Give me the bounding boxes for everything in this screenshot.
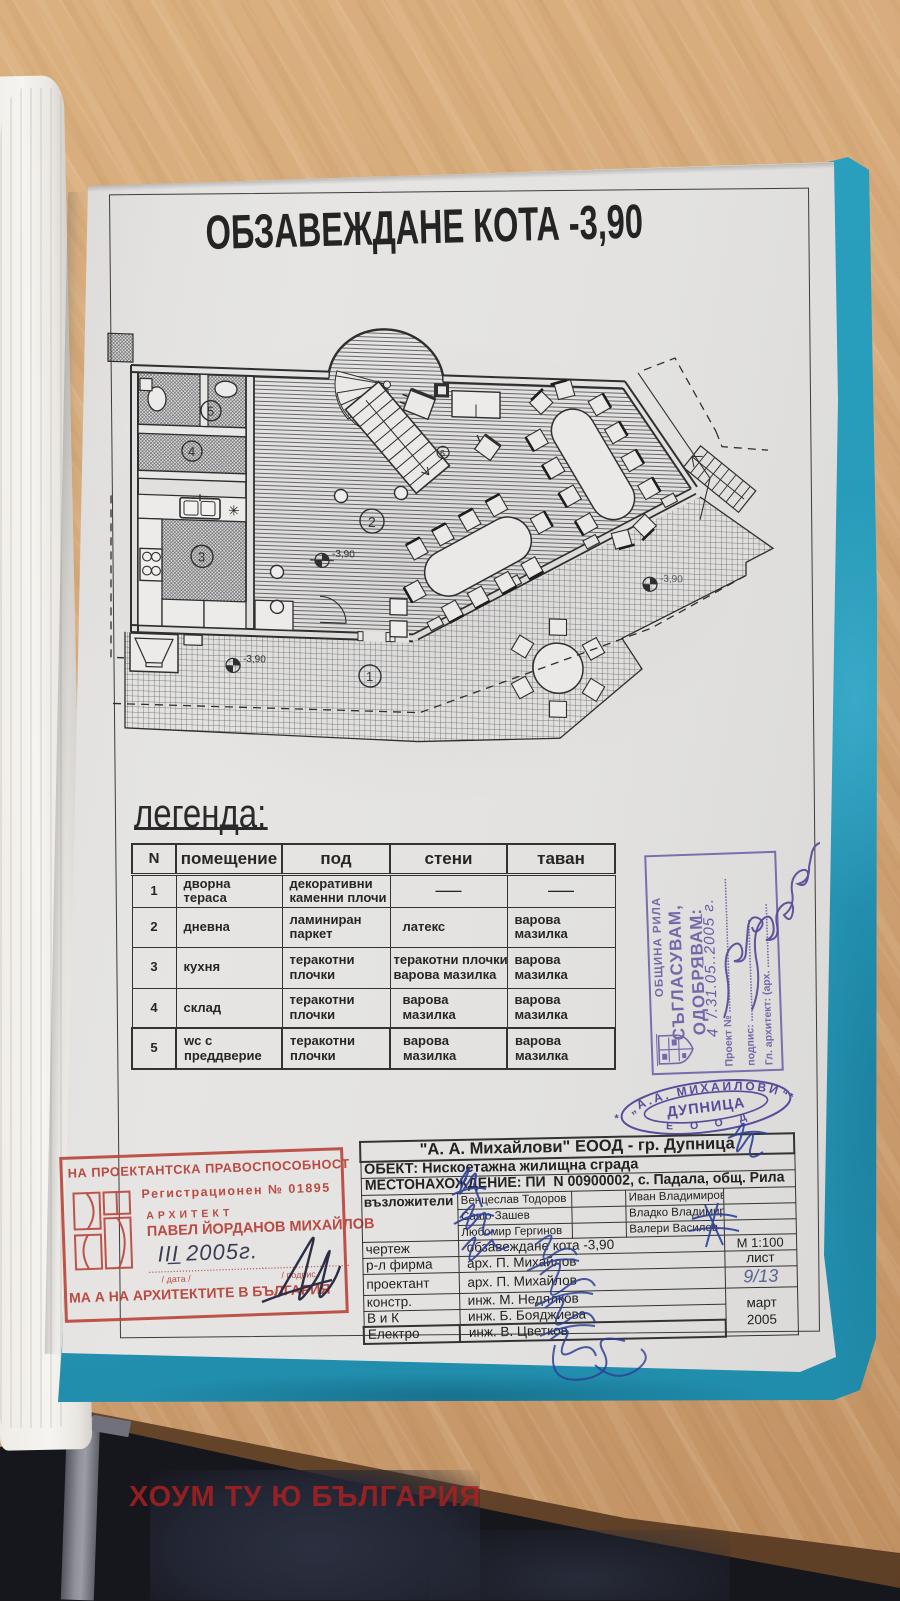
svg-text:2: 2	[368, 514, 376, 530]
svg-text:-3,90: -3,90	[660, 574, 683, 586]
svg-text:1: 1	[366, 669, 373, 684]
svg-text:✳: ✳	[228, 502, 240, 518]
svg-text:4: 4	[188, 444, 195, 459]
svg-text:5: 5	[207, 404, 214, 419]
svg-text:-3,90: -3,90	[332, 549, 355, 561]
svg-text:3: 3	[198, 549, 205, 564]
svg-text:6: 6	[440, 448, 445, 458]
svg-text:-3,90: -3,90	[243, 654, 266, 666]
